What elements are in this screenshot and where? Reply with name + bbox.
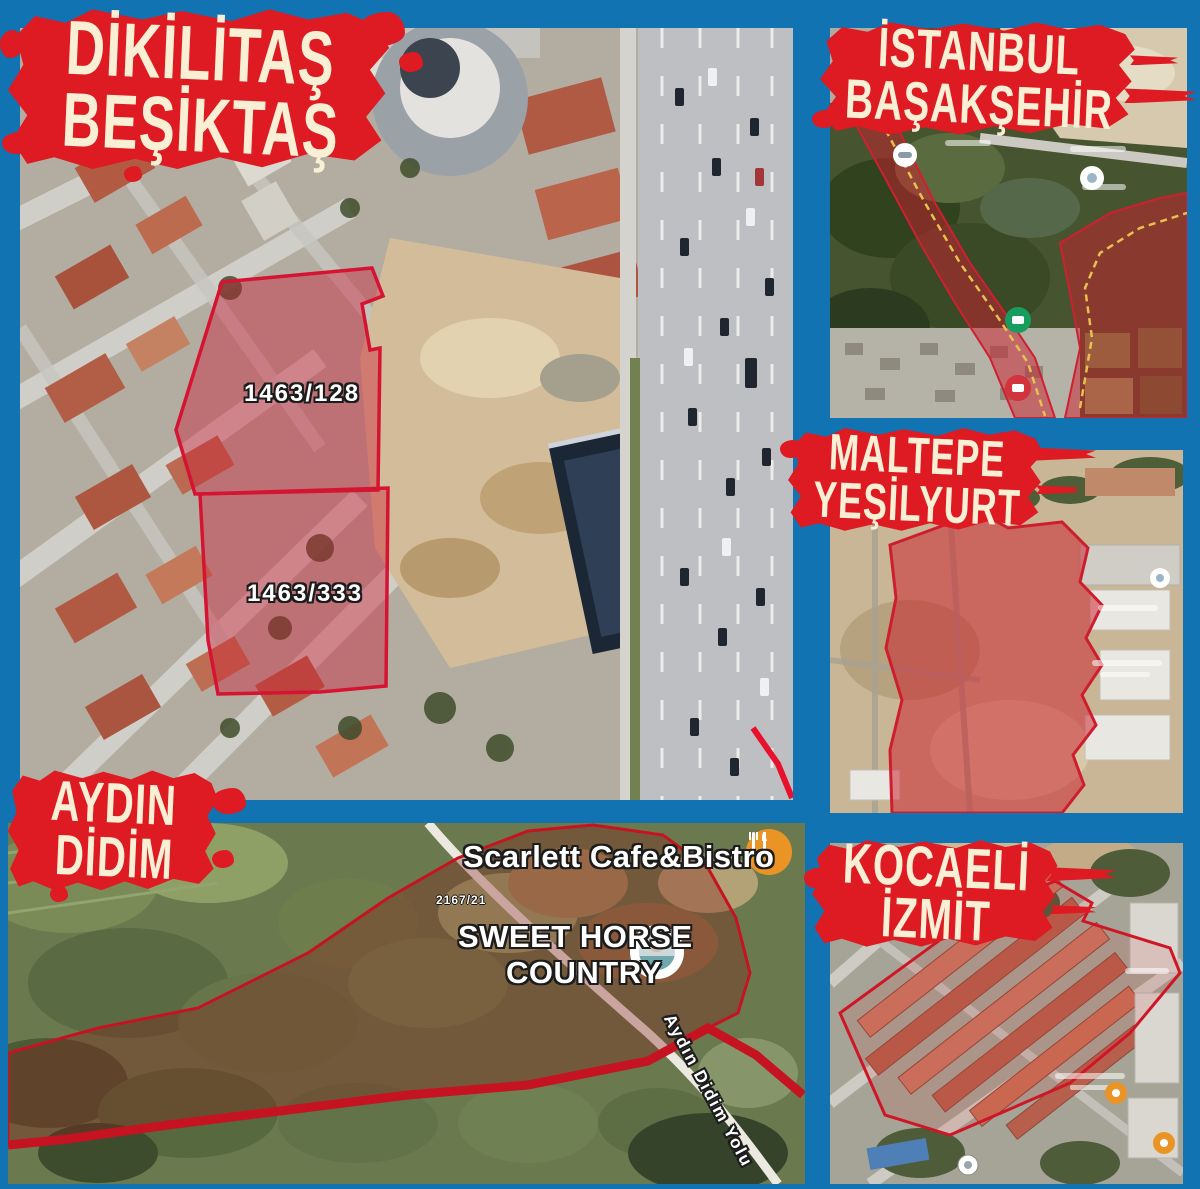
parcel-label-didim: 2167/21 [436,893,486,907]
banner-aydin-didim: AYDIN DİDİM [8,768,220,894]
poi-label-sweet-horse-line2: COUNTRY [506,955,662,991]
banner-title-line2: BAŞAKŞEHİR [844,72,1114,139]
banner-title-line2: BEŞİKTAŞ [60,82,340,171]
parcel-label-1463-333: 1463/333 [225,580,385,608]
banner-title-line2: İZMİT [880,889,992,951]
banner-kocaeli-izmit: KOCAELİ İZMİT [812,838,1060,950]
parcel-label-1463-128: 1463/128 [222,380,382,408]
banner-dikilitas-besiktas: DİKİLİTAŞ BEŞİKTAŞ [8,6,393,174]
banner-title-line2: DİDİM [54,827,175,889]
banner-istanbul-basaksehir: İSTANBUL BAŞAKŞEHİR [820,20,1138,138]
banner-title-line2: YEŞİLYURT [812,474,1022,534]
poi-label-scarlett-cafe: Scarlett Cafe&Bistro [463,839,774,875]
banner-maltepe-yesilyurt: MALTEPE YEŞİLYURT [788,426,1046,534]
poi-label-sweet-horse-line1: SWEET HORSE [458,919,693,955]
news-map-collage: 1463/128 1463/333 [0,0,1200,1189]
